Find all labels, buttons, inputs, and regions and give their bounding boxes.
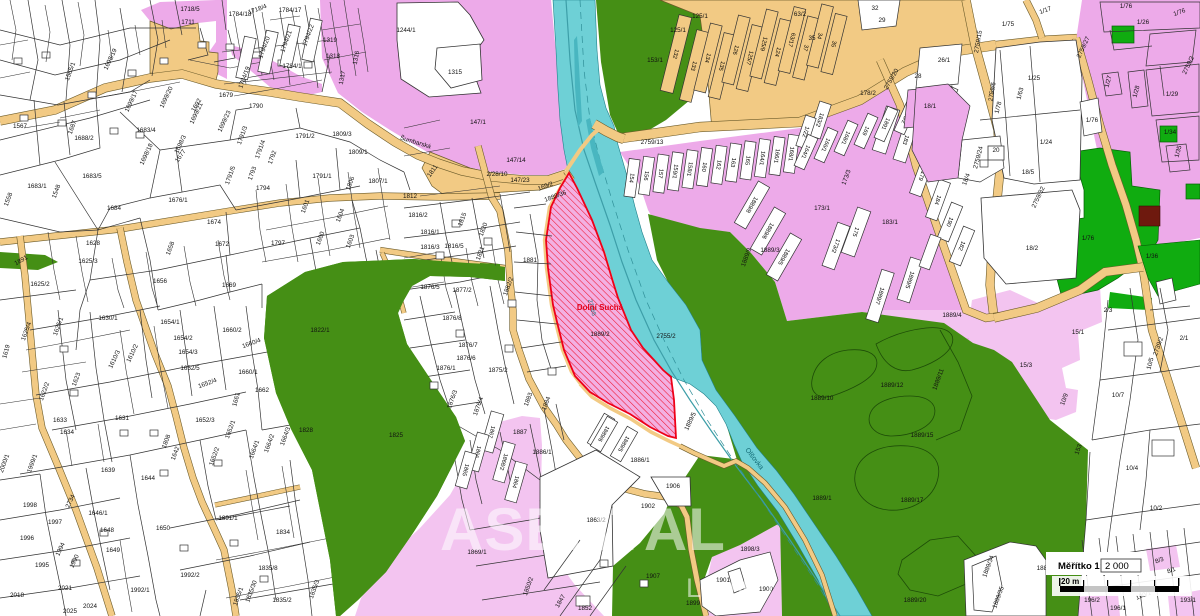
svg-text:1887: 1887 bbox=[513, 429, 528, 436]
svg-text:1791/2: 1791/2 bbox=[295, 133, 315, 140]
svg-text:2/28/10: 2/28/10 bbox=[486, 171, 508, 178]
svg-text:1654/2: 1654/2 bbox=[173, 335, 193, 342]
svg-text:1/75: 1/75 bbox=[1002, 21, 1015, 28]
svg-text:1633: 1633 bbox=[53, 417, 68, 424]
svg-text:196/1: 196/1 bbox=[1110, 605, 1126, 612]
svg-text:1891/1: 1891/1 bbox=[218, 515, 238, 522]
svg-text:1683/5: 1683/5 bbox=[82, 173, 102, 180]
svg-text:193/1: 193/1 bbox=[1180, 597, 1196, 604]
svg-text:153/1: 153/1 bbox=[647, 57, 663, 64]
svg-text:1825: 1825 bbox=[389, 432, 404, 439]
svg-text:1683/4: 1683/4 bbox=[136, 127, 156, 134]
svg-text:28: 28 bbox=[914, 73, 922, 80]
svg-text:1822/1: 1822/1 bbox=[310, 327, 330, 334]
svg-text:1660/1: 1660/1 bbox=[238, 369, 258, 376]
svg-text:1889/15: 1889/15 bbox=[911, 432, 934, 439]
svg-text:1816/1: 1816/1 bbox=[420, 229, 440, 236]
svg-text:1/34: 1/34 bbox=[1164, 129, 1177, 136]
svg-text:1886/1: 1886/1 bbox=[630, 457, 650, 464]
svg-text:1676/1: 1676/1 bbox=[168, 197, 188, 204]
svg-text:1809/1: 1809/1 bbox=[348, 149, 368, 156]
svg-text:1816/3: 1816/3 bbox=[420, 244, 440, 251]
svg-text:20 m: 20 m bbox=[1061, 577, 1079, 586]
svg-text:1/29: 1/29 bbox=[1166, 91, 1179, 98]
svg-text:2018: 2018 bbox=[10, 592, 25, 599]
svg-text:1790: 1790 bbox=[249, 103, 264, 110]
svg-text:1889/4: 1889/4 bbox=[942, 312, 962, 319]
svg-text:1889/3: 1889/3 bbox=[760, 247, 780, 254]
svg-text:1/76: 1/76 bbox=[1086, 117, 1099, 124]
svg-text:1834: 1834 bbox=[276, 529, 291, 536]
svg-text:1828: 1828 bbox=[299, 427, 314, 434]
svg-text:1718/5: 1718/5 bbox=[180, 6, 200, 13]
svg-text:1319: 1319 bbox=[323, 37, 338, 44]
svg-text:1/24: 1/24 bbox=[1040, 139, 1053, 146]
svg-text:1784/18: 1784/18 bbox=[229, 11, 252, 18]
svg-text:1672: 1672 bbox=[215, 241, 230, 248]
svg-text:1656: 1656 bbox=[153, 278, 168, 285]
svg-text:1995: 1995 bbox=[35, 562, 50, 569]
svg-text:1660/2: 1660/2 bbox=[222, 327, 242, 334]
svg-text:1/76: 1/76 bbox=[1082, 235, 1095, 242]
svg-text:1652/3: 1652/3 bbox=[195, 417, 215, 424]
svg-text:1906: 1906 bbox=[666, 483, 681, 490]
svg-text:1784/1: 1784/1 bbox=[282, 63, 302, 70]
svg-text:125/1: 125/1 bbox=[692, 13, 708, 20]
svg-text:1889/20: 1889/20 bbox=[904, 597, 927, 604]
svg-text:15/1: 15/1 bbox=[1072, 329, 1085, 336]
svg-text:32: 32 bbox=[871, 5, 879, 12]
svg-text:1784/17: 1784/17 bbox=[279, 7, 302, 14]
svg-text:1639: 1639 bbox=[101, 467, 116, 474]
svg-text:1794: 1794 bbox=[256, 185, 271, 192]
svg-text:15/3: 15/3 bbox=[1020, 362, 1033, 369]
svg-text:1812: 1812 bbox=[403, 193, 418, 200]
svg-text:1/26: 1/26 bbox=[1137, 19, 1150, 26]
svg-text:1654/3: 1654/3 bbox=[178, 349, 198, 356]
svg-text:1652/5: 1652/5 bbox=[180, 365, 200, 372]
svg-text:1/25: 1/25 bbox=[1028, 75, 1041, 82]
svg-text:1648: 1648 bbox=[100, 527, 115, 534]
svg-text:2/1: 2/1 bbox=[1180, 335, 1189, 342]
svg-text:2025: 2025 bbox=[63, 608, 78, 615]
svg-text:147/1: 147/1 bbox=[470, 119, 486, 126]
svg-text:1688/2: 1688/2 bbox=[74, 135, 94, 142]
svg-text:1711: 1711 bbox=[181, 19, 195, 26]
svg-text:173/1: 173/1 bbox=[814, 205, 830, 212]
svg-text:147/14: 147/14 bbox=[506, 157, 526, 164]
svg-text:1807/1: 1807/1 bbox=[368, 178, 388, 185]
svg-text:2 000: 2 000 bbox=[1105, 561, 1129, 572]
svg-text:1816/5: 1816/5 bbox=[444, 243, 464, 250]
svg-text:1809/3: 1809/3 bbox=[332, 131, 352, 138]
svg-text:196/2: 196/2 bbox=[1084, 597, 1100, 604]
svg-text:1889/17: 1889/17 bbox=[901, 497, 924, 504]
svg-text:1992/1: 1992/1 bbox=[130, 587, 150, 594]
svg-text:1886/1: 1886/1 bbox=[532, 449, 552, 456]
svg-text:1634: 1634 bbox=[60, 429, 75, 436]
svg-text:1876/7: 1876/7 bbox=[458, 342, 478, 349]
svg-text:2021: 2021 bbox=[58, 585, 73, 592]
svg-text:1881: 1881 bbox=[523, 257, 538, 264]
svg-text:Měřítko 1:: Měřítko 1: bbox=[1058, 561, 1103, 572]
svg-text:2024: 2024 bbox=[83, 603, 98, 610]
svg-text:1669: 1669 bbox=[222, 282, 237, 289]
svg-text:1679: 1679 bbox=[219, 92, 234, 99]
svg-text:1625/3: 1625/3 bbox=[78, 258, 98, 265]
svg-text:1318: 1318 bbox=[326, 53, 341, 60]
svg-text:1625/2: 1625/2 bbox=[30, 281, 50, 288]
svg-text:1889/2: 1889/2 bbox=[590, 331, 610, 338]
svg-text:125/1: 125/1 bbox=[670, 27, 686, 34]
svg-text:1876/8: 1876/8 bbox=[442, 315, 462, 322]
svg-text:1684: 1684 bbox=[107, 205, 122, 212]
svg-text:18/1: 18/1 bbox=[924, 103, 937, 110]
svg-text:1662: 1662 bbox=[255, 387, 270, 394]
svg-text:1674: 1674 bbox=[207, 219, 222, 226]
svg-text:35: 35 bbox=[808, 35, 816, 42]
svg-text:1852: 1852 bbox=[578, 605, 593, 612]
svg-text:1889/12: 1889/12 bbox=[881, 382, 904, 389]
svg-text:1876/6: 1876/6 bbox=[456, 355, 476, 362]
svg-text:18/2: 18/2 bbox=[1026, 245, 1039, 252]
svg-text:26/1: 26/1 bbox=[938, 57, 951, 64]
svg-text:1889/1: 1889/1 bbox=[812, 495, 832, 502]
svg-text:1877/2: 1877/2 bbox=[452, 287, 472, 294]
svg-text:1997: 1997 bbox=[48, 519, 63, 526]
svg-text:ASENTAL: ASENTAL bbox=[440, 496, 726, 563]
svg-text:1992/2: 1992/2 bbox=[180, 572, 200, 579]
svg-text:1/36: 1/36 bbox=[1146, 253, 1159, 260]
svg-text:1649: 1649 bbox=[106, 547, 121, 554]
svg-text:1875/2: 1875/2 bbox=[488, 367, 508, 374]
svg-text:1889/10: 1889/10 bbox=[811, 395, 834, 402]
svg-text:1315: 1315 bbox=[448, 69, 463, 76]
svg-text:1631: 1631 bbox=[115, 415, 130, 422]
svg-text:10/2: 10/2 bbox=[1150, 505, 1163, 512]
svg-text:1998: 1998 bbox=[23, 502, 38, 509]
svg-text:1654/1: 1654/1 bbox=[160, 319, 180, 326]
svg-text:10/4: 10/4 bbox=[1126, 465, 1139, 472]
svg-text:1876/1: 1876/1 bbox=[436, 365, 456, 372]
svg-text:1628: 1628 bbox=[86, 240, 101, 247]
svg-text:29: 29 bbox=[878, 17, 886, 24]
svg-text:1683/1: 1683/1 bbox=[27, 183, 47, 190]
svg-text:1907: 1907 bbox=[646, 573, 661, 580]
svg-text:1835/2: 1835/2 bbox=[272, 597, 292, 604]
svg-text:63/2: 63/2 bbox=[794, 11, 807, 18]
svg-text:1630/1: 1630/1 bbox=[98, 315, 118, 322]
svg-text:1567: 1567 bbox=[13, 123, 28, 130]
svg-text:1646/1: 1646/1 bbox=[88, 510, 108, 517]
svg-text:2/3: 2/3 bbox=[1104, 307, 1113, 314]
svg-text:1244/1: 1244/1 bbox=[396, 27, 416, 34]
svg-text:1644: 1644 bbox=[141, 475, 156, 482]
svg-text:147/23: 147/23 bbox=[510, 177, 530, 184]
svg-text:1797: 1797 bbox=[271, 240, 286, 247]
svg-text:1650: 1650 bbox=[156, 525, 171, 532]
svg-text:183/1: 183/1 bbox=[882, 219, 898, 226]
svg-text:1898/3: 1898/3 bbox=[740, 546, 760, 553]
svg-text:Dolní Suchá: Dolní Suchá bbox=[577, 303, 624, 312]
svg-text:1835/8: 1835/8 bbox=[258, 565, 278, 572]
svg-text:2755/2: 2755/2 bbox=[656, 333, 676, 340]
svg-text:20: 20 bbox=[992, 147, 1000, 154]
svg-text:10/7: 10/7 bbox=[1112, 392, 1125, 399]
svg-text:1996: 1996 bbox=[20, 535, 35, 542]
svg-text:1876/5: 1876/5 bbox=[420, 284, 440, 291]
svg-text:1816/2: 1816/2 bbox=[408, 212, 428, 219]
svg-text:1/76: 1/76 bbox=[1120, 3, 1133, 10]
svg-text:LAND: LAND bbox=[686, 573, 778, 603]
svg-text:2759/13: 2759/13 bbox=[641, 139, 664, 146]
svg-text:178/2: 178/2 bbox=[860, 90, 876, 97]
svg-text:1791/1: 1791/1 bbox=[312, 173, 332, 180]
svg-text:18/5: 18/5 bbox=[1022, 169, 1035, 176]
